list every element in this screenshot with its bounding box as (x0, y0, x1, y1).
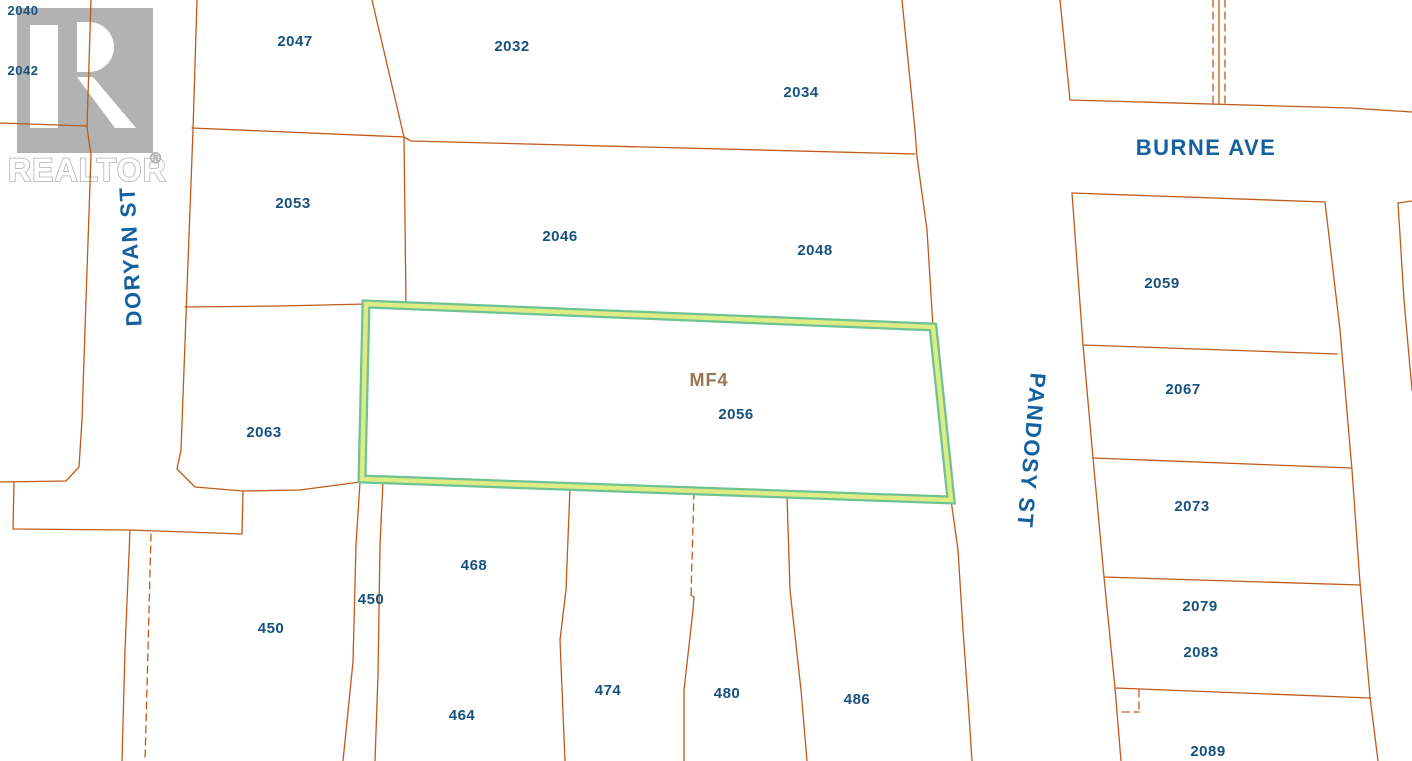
realtor-wordmark: REALTOR ® (8, 150, 167, 188)
lot-label-468: 468 (461, 557, 488, 574)
divider-474-480-lower (684, 595, 694, 761)
lot-label-2067: 2067 (1165, 381, 1200, 398)
doryan-st-east-line (177, 0, 360, 491)
lot-label-486: 486 (844, 691, 871, 708)
divider-2073-2079 (1104, 577, 1360, 585)
divider-2053-2063 (185, 304, 366, 307)
divider-2067-2073 (1093, 458, 1351, 468)
lot-label-2063: 2063 (246, 424, 281, 441)
lot-label-2047: 2047 (277, 33, 312, 50)
right-column-west-line (1072, 193, 1121, 761)
strip-lot-west-line (343, 482, 360, 761)
lot-label-2073: 2073 (1174, 498, 1209, 515)
street-label-pandosy-st: PANDOSY ST (1012, 372, 1051, 530)
lot-label-2089: 2089 (1190, 743, 1225, 760)
lot-label-450-strip: 450 (358, 591, 385, 608)
divider-2083-2089 (1115, 688, 1370, 698)
lot-label-2079: 2079 (1182, 598, 1217, 615)
divider-474-480-dashed (691, 492, 694, 595)
divider-2053-2046 (404, 137, 406, 305)
lot-label-2042: 2042 (8, 63, 39, 78)
lane-bulb-boundary (13, 482, 243, 534)
lot-label-2048: 2048 (797, 242, 832, 259)
lot-label-2034: 2034 (783, 84, 819, 101)
highlight-outline-outer (362, 304, 951, 500)
strip-lot-east-line (375, 481, 383, 761)
divider-2047-2032 (372, 0, 404, 137)
plat-map-canvas: REALTOR ® (0, 0, 1412, 761)
lot-label-2056: 2056 (718, 406, 753, 423)
zone-code-label: MF4 (690, 370, 729, 390)
top-right-lot-west-line (1060, 0, 1070, 100)
lot-label-2083: 2083 (1183, 644, 1218, 661)
north-block-divider (192, 128, 915, 154)
right-column-east-line (1325, 202, 1378, 761)
plat-map: REALTOR ® (0, 0, 1412, 761)
lot-label-2059: 2059 (1144, 275, 1179, 292)
burne-ave-north-line (1070, 100, 1412, 112)
street-label-doryan-st: DORYAN ST (114, 186, 146, 327)
highlighted-parcel-2056 (362, 304, 951, 500)
divider-2059-2067 (1083, 345, 1337, 354)
divider-480-486 (787, 495, 807, 761)
registered-trademark-symbol: ® (150, 150, 161, 167)
realtor-brand-text: REALTOR (8, 152, 167, 188)
lot-label-464: 464 (449, 707, 476, 724)
lot-label-2040: 2040 (8, 3, 39, 18)
lot-label-480: 480 (714, 685, 741, 702)
pandosy-west-line-south (951, 500, 972, 761)
lot-label-474: 474 (595, 682, 622, 699)
street-label-burne-ave: BURNE AVE (1136, 135, 1277, 160)
lot-label-2032: 2032 (494, 38, 529, 55)
south-lane-dashed-line (145, 534, 151, 761)
south-lane-west-line (122, 530, 130, 761)
far-right-lot-west-line (1398, 203, 1412, 390)
divider-468-474 (560, 487, 570, 761)
lot-label-2053: 2053 (275, 195, 310, 212)
lot-label-2046: 2046 (542, 228, 577, 245)
burne-ave-south-line (1072, 193, 1325, 202)
far-right-lot-north-line (1398, 201, 1412, 203)
lot-label-450-west: 450 (258, 620, 285, 637)
pandosy-west-line-north (902, 0, 933, 327)
